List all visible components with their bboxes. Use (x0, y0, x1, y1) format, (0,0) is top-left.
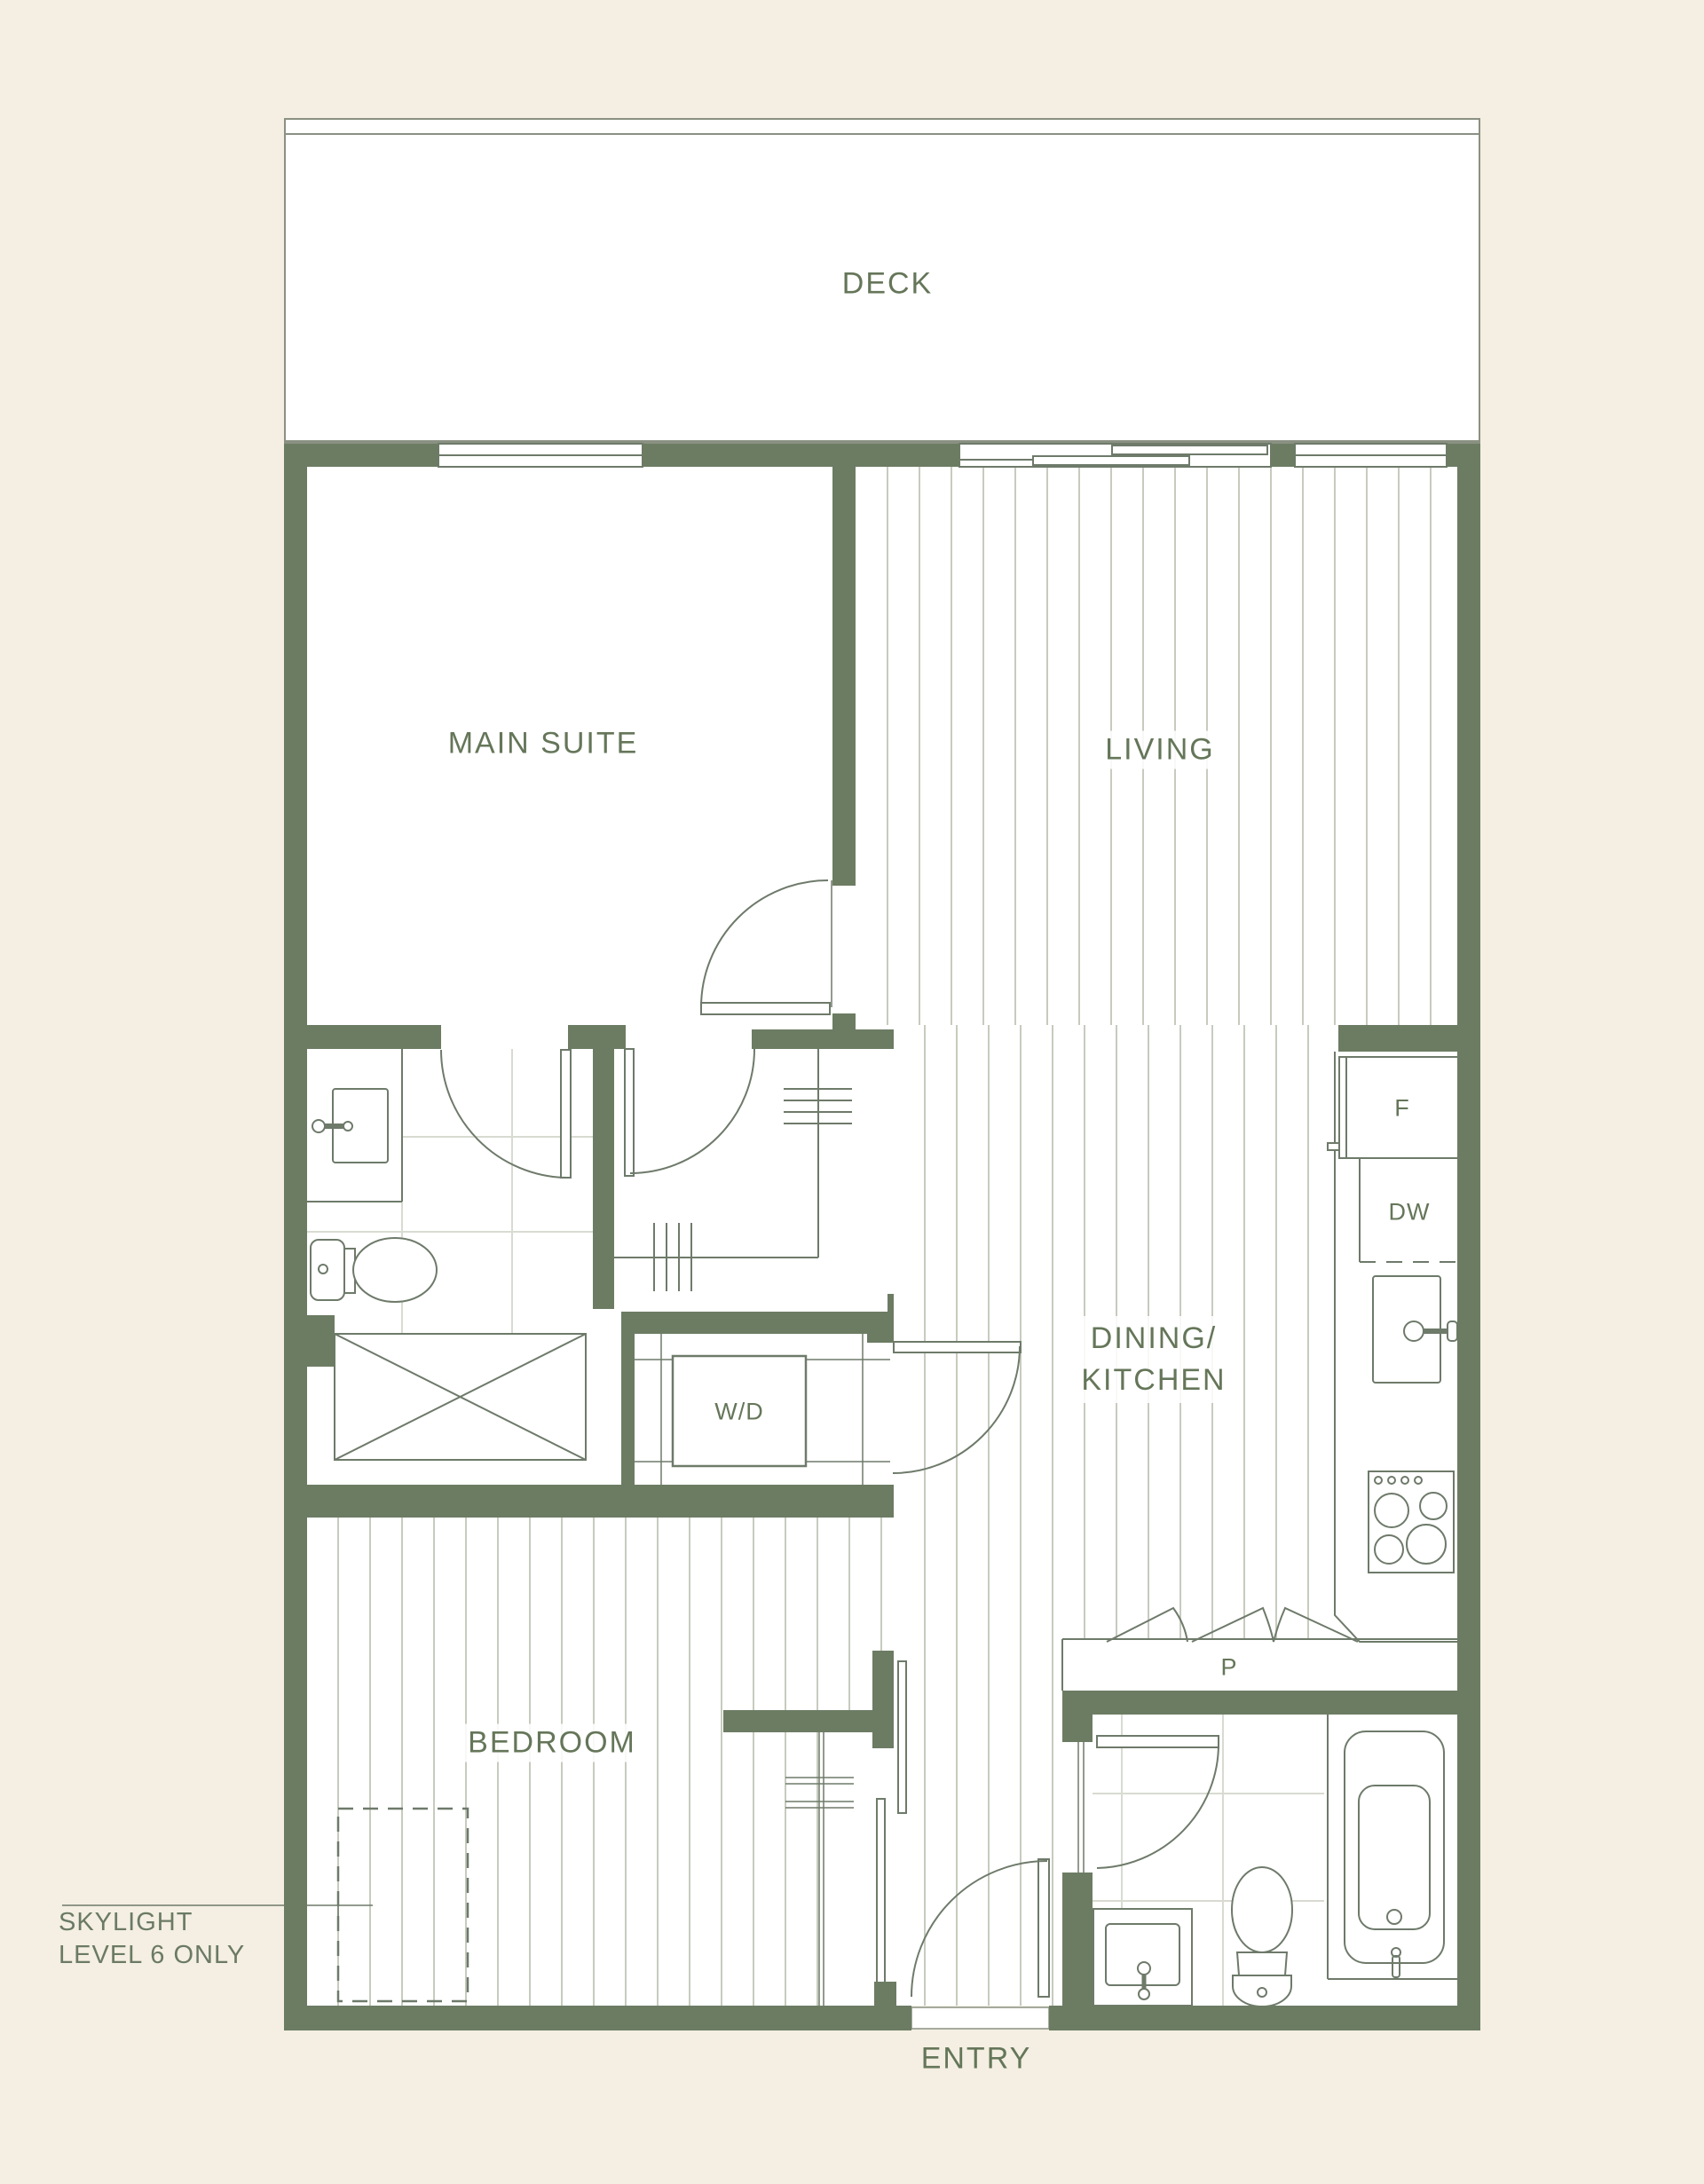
wall-bathroom2-pier-lower (1062, 1873, 1093, 2006)
appliance-label-washer-dryer: W/D (714, 1399, 763, 1426)
wall-bottom-a (284, 2006, 911, 2030)
wall-ensuite-top-a (307, 1025, 441, 1049)
room-label-living: LIVING (1096, 731, 1223, 769)
wall-closet-top (752, 1029, 894, 1049)
wall-entry-closet-stub (874, 1982, 896, 2006)
skylight-note-line2: LEVEL 6 ONLY (59, 1941, 245, 1969)
room-label-main-suite: MAIN SUITE (448, 727, 639, 761)
wall-wd-niche-top (621, 1312, 894, 1334)
window-main-suite (438, 444, 643, 467)
skylight-annotation: SKYLIGHTLEVEL 6 ONLY (59, 1906, 245, 1972)
wall-bathroom2-pier-upper (1062, 1715, 1093, 1742)
wall-right (1457, 444, 1480, 2030)
wall-bedroom-top (307, 1485, 894, 1518)
wall-wd-niche-left (621, 1334, 635, 1489)
hall-floor-planks (894, 1639, 1056, 2006)
appliance-label-dishwasher: DW (1389, 1199, 1431, 1226)
wall-top-b (643, 444, 959, 467)
window-living (1295, 444, 1447, 467)
wall-suite-living-divider (832, 467, 856, 886)
room-label-entry: ENTRY (921, 2042, 1032, 2077)
wall-closet-left (593, 1049, 614, 1309)
room-label-dining-kitchen: DINING/KITCHEN (1072, 1316, 1235, 1403)
wall-shower-corner (307, 1315, 335, 1367)
wall-bottom-b (1049, 2006, 1480, 2030)
wall-top-pier (1271, 444, 1295, 467)
appliance-label-pantry: P (1220, 1654, 1237, 1682)
sliding-door-deck (959, 444, 1271, 467)
room-label-deck: DECK (842, 267, 933, 302)
wall-hall-stub (887, 1294, 894, 1313)
wall-left (284, 444, 307, 2030)
wall-top-a (284, 444, 438, 467)
wall-wd-niche-pier (867, 1312, 894, 1343)
wall-bathroom2-top (1062, 1691, 1461, 1715)
wall-bedroom-closet-pier (872, 1651, 894, 1748)
wall-bedroom-closet-top (723, 1710, 872, 1732)
wall-ensuite-top-b (568, 1025, 626, 1049)
dining-line2: KITCHEN (1081, 1363, 1226, 1397)
appliance-label-fridge: F (1394, 1095, 1410, 1123)
room-label-bedroom: BEDROOM (459, 1724, 645, 1762)
wall-kitchen-stub (1338, 1025, 1457, 1052)
skylight-note-line1: SKYLIGHT (59, 1908, 193, 1936)
dining-line1: DINING/ (1091, 1321, 1217, 1355)
